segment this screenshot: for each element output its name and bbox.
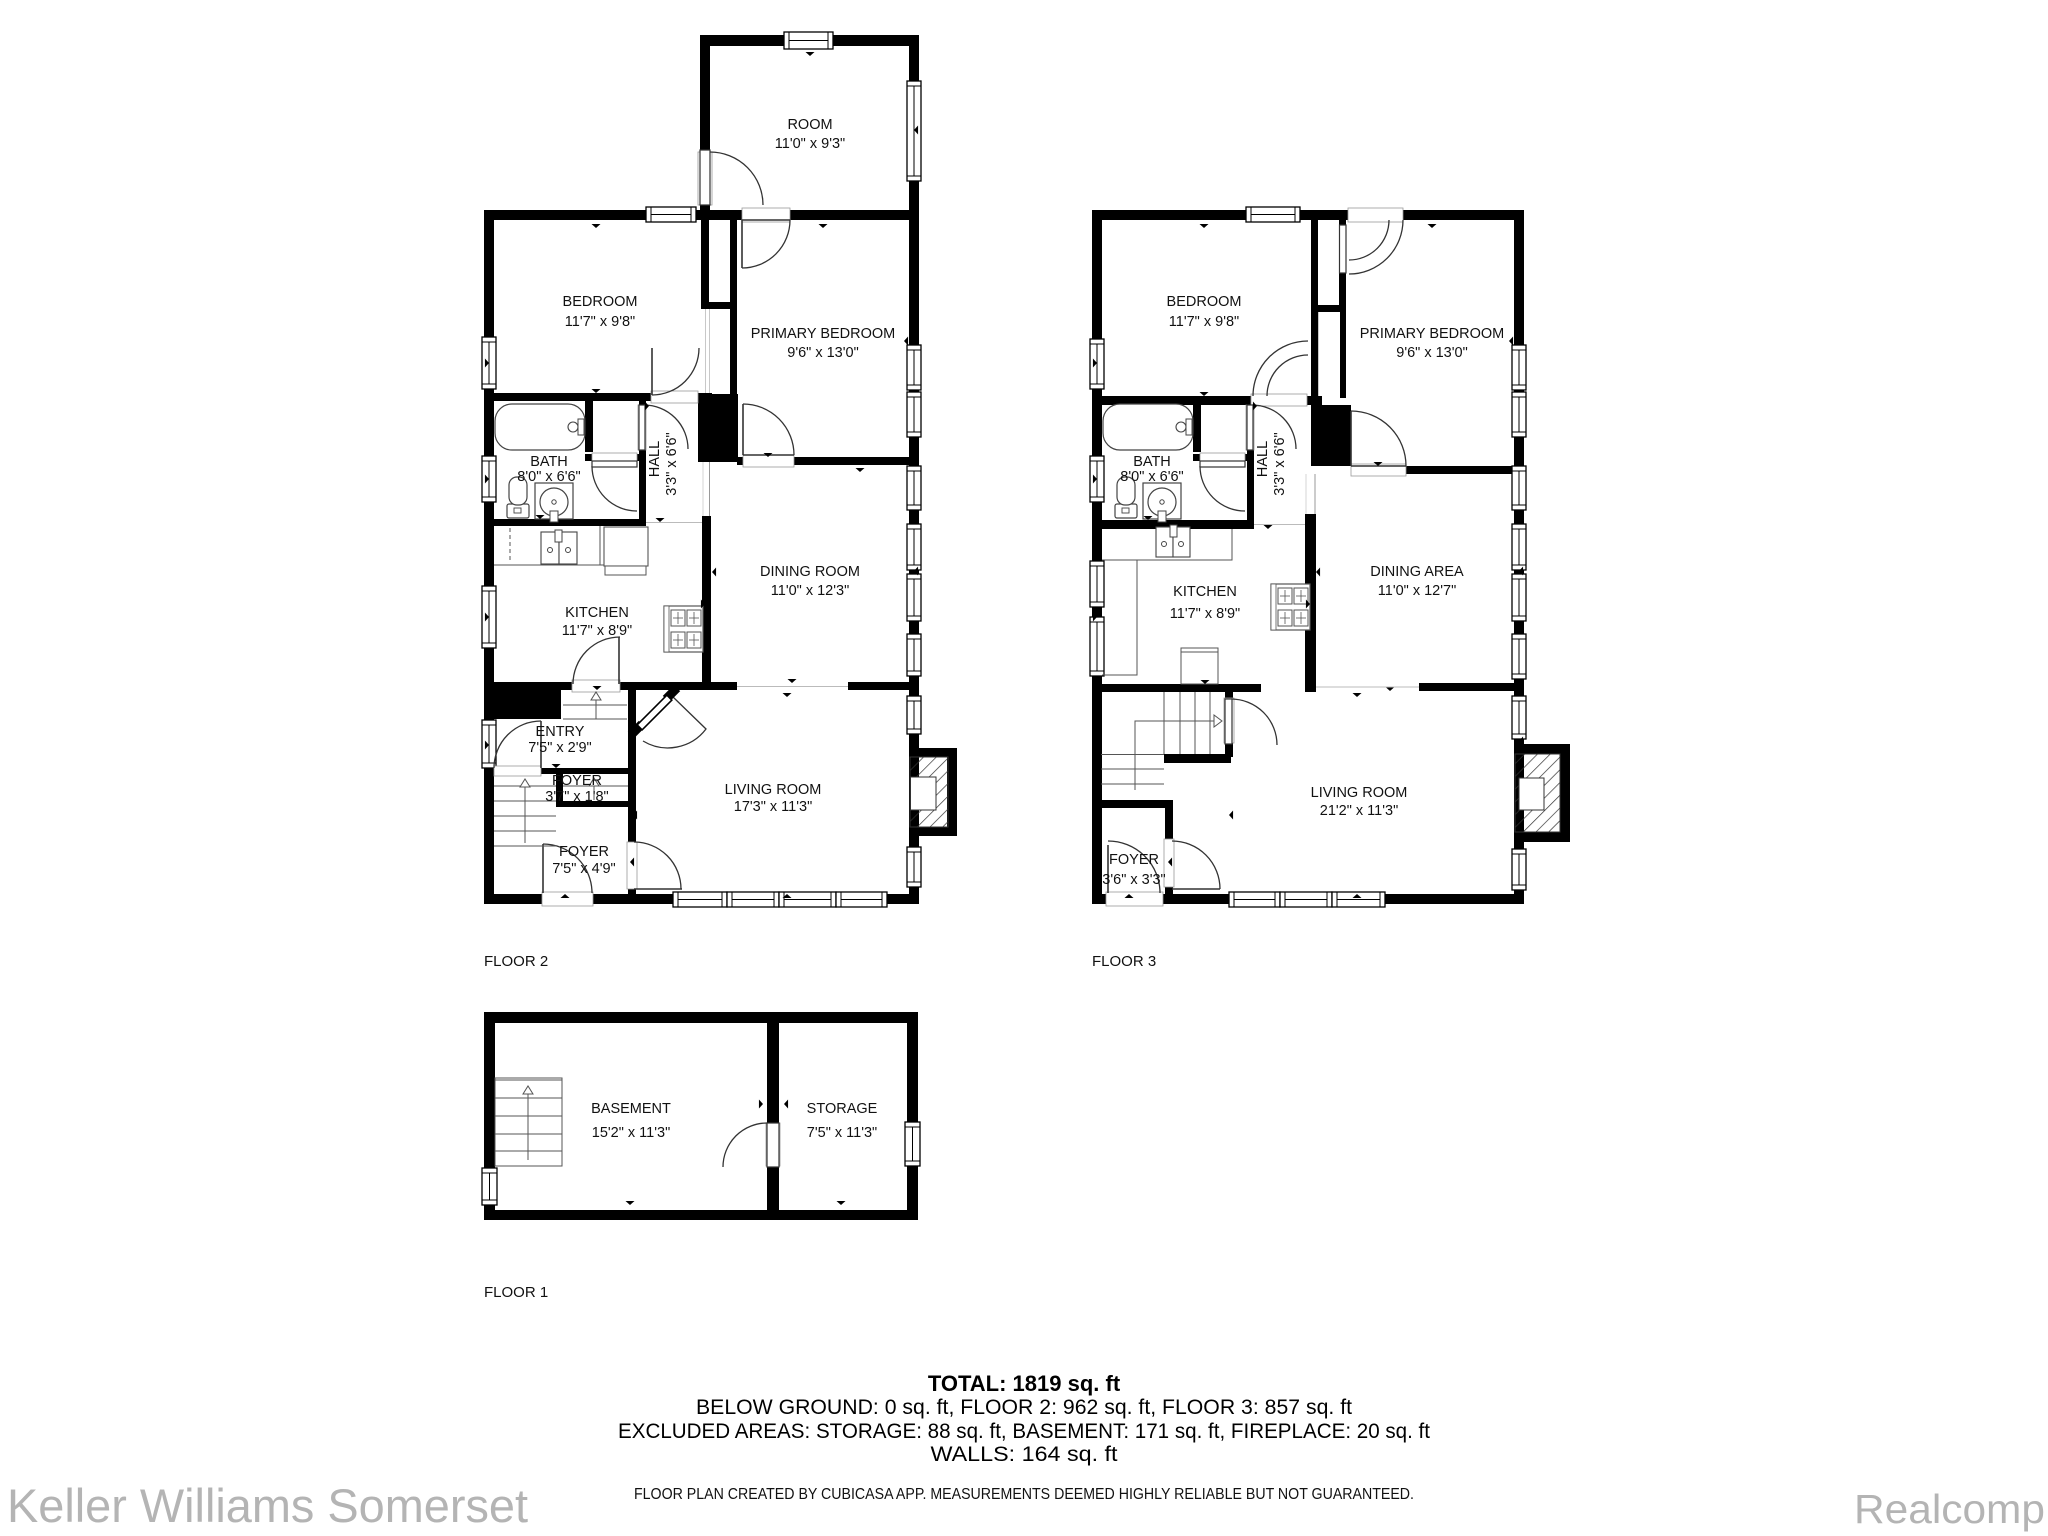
svg-text:21'2" x 11'3": 21'2" x 11'3" [1320, 803, 1398, 819]
svg-text:Realcomp: Realcomp [1854, 1486, 2045, 1532]
svg-text:11'0" x 9'3": 11'0" x 9'3" [775, 136, 845, 152]
svg-text:11'7" x 8'9": 11'7" x 8'9" [1170, 606, 1240, 622]
svg-text:15'2" x 11'3": 15'2" x 11'3" [592, 1125, 670, 1141]
svg-text:LIVING ROOM: LIVING ROOM [725, 782, 822, 798]
svg-text:TOTAL: 1819 sq. ft: TOTAL: 1819 sq. ft [928, 1371, 1121, 1396]
svg-text:PRIMARY BEDROOM: PRIMARY BEDROOM [1360, 326, 1505, 342]
svg-text:WALLS: 164 sq. ft: WALLS: 164 sq. ft [931, 1443, 1118, 1466]
svg-text:11'7" x 9'8": 11'7" x 9'8" [1169, 314, 1239, 330]
svg-text:ENTRY: ENTRY [536, 724, 585, 740]
svg-text:8'0" x 6'6": 8'0" x 6'6" [517, 469, 580, 485]
svg-text:3'3" x 6'6": 3'3" x 6'6" [664, 432, 680, 495]
svg-text:FLOOR 2: FLOOR 2 [484, 953, 548, 970]
svg-text:BASEMENT: BASEMENT [591, 1101, 671, 1117]
svg-text:FOYER: FOYER [1109, 852, 1159, 868]
svg-text:ROOM: ROOM [787, 117, 832, 133]
svg-text:STORAGE: STORAGE [807, 1101, 878, 1117]
svg-text:BATH: BATH [530, 454, 568, 470]
svg-text:PRIMARY BEDROOM: PRIMARY BEDROOM [751, 326, 896, 342]
svg-text:LIVING ROOM: LIVING ROOM [1311, 785, 1408, 801]
svg-text:KITCHEN: KITCHEN [565, 605, 629, 621]
svg-text:BEDROOM: BEDROOM [1167, 294, 1242, 310]
svg-text:11'7" x 9'8": 11'7" x 9'8" [565, 314, 635, 330]
svg-text:9'6" x 13'0": 9'6" x 13'0" [1396, 345, 1467, 361]
svg-text:11'0" x 12'7": 11'0" x 12'7" [1378, 583, 1456, 599]
svg-text:DINING AREA: DINING AREA [1370, 564, 1464, 580]
svg-text:HALL: HALL [647, 441, 663, 477]
svg-text:DINING ROOM: DINING ROOM [760, 564, 860, 580]
svg-text:FLOOR PLAN CREATED BY CUBICASA: FLOOR PLAN CREATED BY CUBICASA APP. MEAS… [634, 1486, 1414, 1503]
svg-text:3'6" x 3'3": 3'6" x 3'3" [1102, 872, 1165, 888]
svg-text:BEDROOM: BEDROOM [563, 294, 638, 310]
svg-text:FOYER: FOYER [552, 773, 602, 789]
svg-text:17'3" x 11'3": 17'3" x 11'3" [734, 799, 812, 815]
svg-text:7'5" x 11'3": 7'5" x 11'3" [807, 1125, 877, 1141]
svg-text:Keller Williams Somerset: Keller Williams Somerset [7, 1479, 528, 1532]
svg-text:EXCLUDED AREAS: STORAGE: 88 sq: EXCLUDED AREAS: STORAGE: 88 sq. ft, BASE… [618, 1420, 1430, 1443]
svg-text:9'6" x 13'0": 9'6" x 13'0" [787, 345, 858, 361]
svg-text:11'0" x 12'3": 11'0" x 12'3" [771, 583, 849, 599]
svg-text:3'7" x 1'8": 3'7" x 1'8" [545, 789, 608, 805]
svg-text:FOYER: FOYER [559, 844, 609, 860]
svg-text:FLOOR 3: FLOOR 3 [1092, 953, 1156, 970]
svg-text:8'0" x 6'6": 8'0" x 6'6" [1120, 469, 1183, 485]
svg-text:7'5" x 2'9": 7'5" x 2'9" [528, 740, 591, 756]
svg-text:BATH: BATH [1133, 454, 1171, 470]
svg-text:7'5" x 4'9": 7'5" x 4'9" [552, 861, 615, 877]
svg-text:3'3" x 6'6": 3'3" x 6'6" [1272, 432, 1288, 495]
svg-text:FLOOR 1: FLOOR 1 [484, 1284, 548, 1301]
svg-text:BELOW GROUND: 0 sq. ft, FLOOR: BELOW GROUND: 0 sq. ft, FLOOR 2: 962 sq.… [696, 1396, 1352, 1419]
svg-text:11'7" x 8'9": 11'7" x 8'9" [562, 623, 632, 639]
svg-text:HALL: HALL [1255, 441, 1271, 477]
svg-text:KITCHEN: KITCHEN [1173, 584, 1237, 600]
